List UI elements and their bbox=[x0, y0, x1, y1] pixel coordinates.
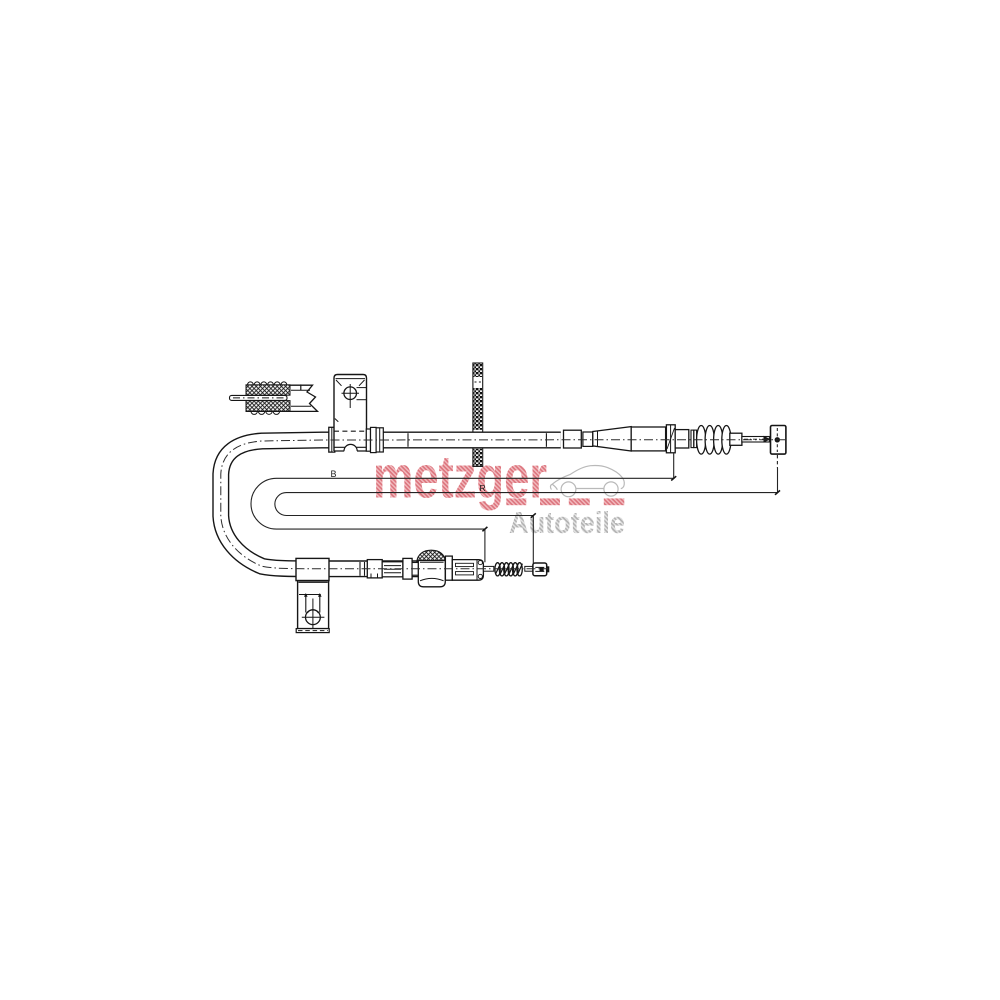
svg-text:B: B bbox=[331, 469, 337, 479]
svg-text:R: R bbox=[480, 483, 486, 493]
svg-text:Autoteile: Autoteile bbox=[509, 505, 625, 540]
